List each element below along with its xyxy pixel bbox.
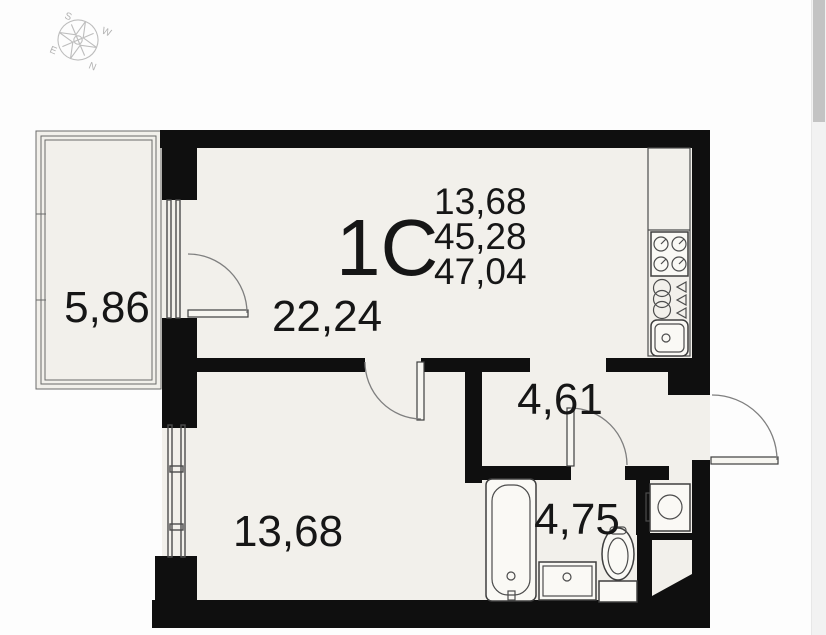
room-label-bathroom: 4,75 <box>534 495 620 544</box>
room-label-balcony: 5,86 <box>64 283 150 332</box>
area-line-3: 47,04 <box>434 251 527 292</box>
room-label-bedroom: 13,68 <box>233 507 343 556</box>
room-label-living: 22,24 <box>272 292 382 341</box>
compass-n: N <box>87 61 98 74</box>
bathtub-icon <box>486 479 536 601</box>
wall-hall-bath-right <box>625 466 669 480</box>
wall-bottom <box>152 600 710 628</box>
balcony-floor-area <box>36 131 162 389</box>
scrollbar-thumb[interactable] <box>813 0 825 122</box>
bedroom-door-leaf <box>417 362 424 420</box>
stove-icon <box>651 232 688 276</box>
wall-top <box>160 130 710 148</box>
compass-w: W <box>100 26 113 40</box>
plan-code: 1С <box>336 203 438 292</box>
wall-living-hall-right <box>606 358 670 372</box>
wall-left-mid <box>162 318 197 428</box>
wall-left-top <box>162 148 197 200</box>
washbasin-icon <box>539 562 596 600</box>
compass-e: E <box>48 45 59 58</box>
balcony-door-leaf <box>188 310 248 317</box>
washing-machine-icon <box>646 484 690 531</box>
wall-right-upper <box>692 148 710 360</box>
page: S W N E 1С 13,68 45,28 47,04 5,86 22,24 … <box>0 0 826 635</box>
wall-bath-washer <box>636 480 650 535</box>
entrance-door-arc <box>712 395 777 460</box>
wall-left-low <box>155 556 197 600</box>
room-label-hallway: 4,61 <box>517 375 603 424</box>
entrance-door <box>711 395 778 464</box>
wall-right-jog <box>668 358 710 395</box>
wall-living-hall-left <box>421 358 530 372</box>
wall-living-bedroom <box>197 358 365 372</box>
scrollbar <box>811 0 826 635</box>
kitchen-sink-icon <box>651 320 688 356</box>
entrance-door-leaf <box>711 457 778 464</box>
wall-hall-bath-left <box>465 466 571 480</box>
compass-icon: S W N E <box>48 11 113 74</box>
floor-plan: S W N E 1С 13,68 45,28 47,04 5,86 22,24 … <box>0 0 826 635</box>
